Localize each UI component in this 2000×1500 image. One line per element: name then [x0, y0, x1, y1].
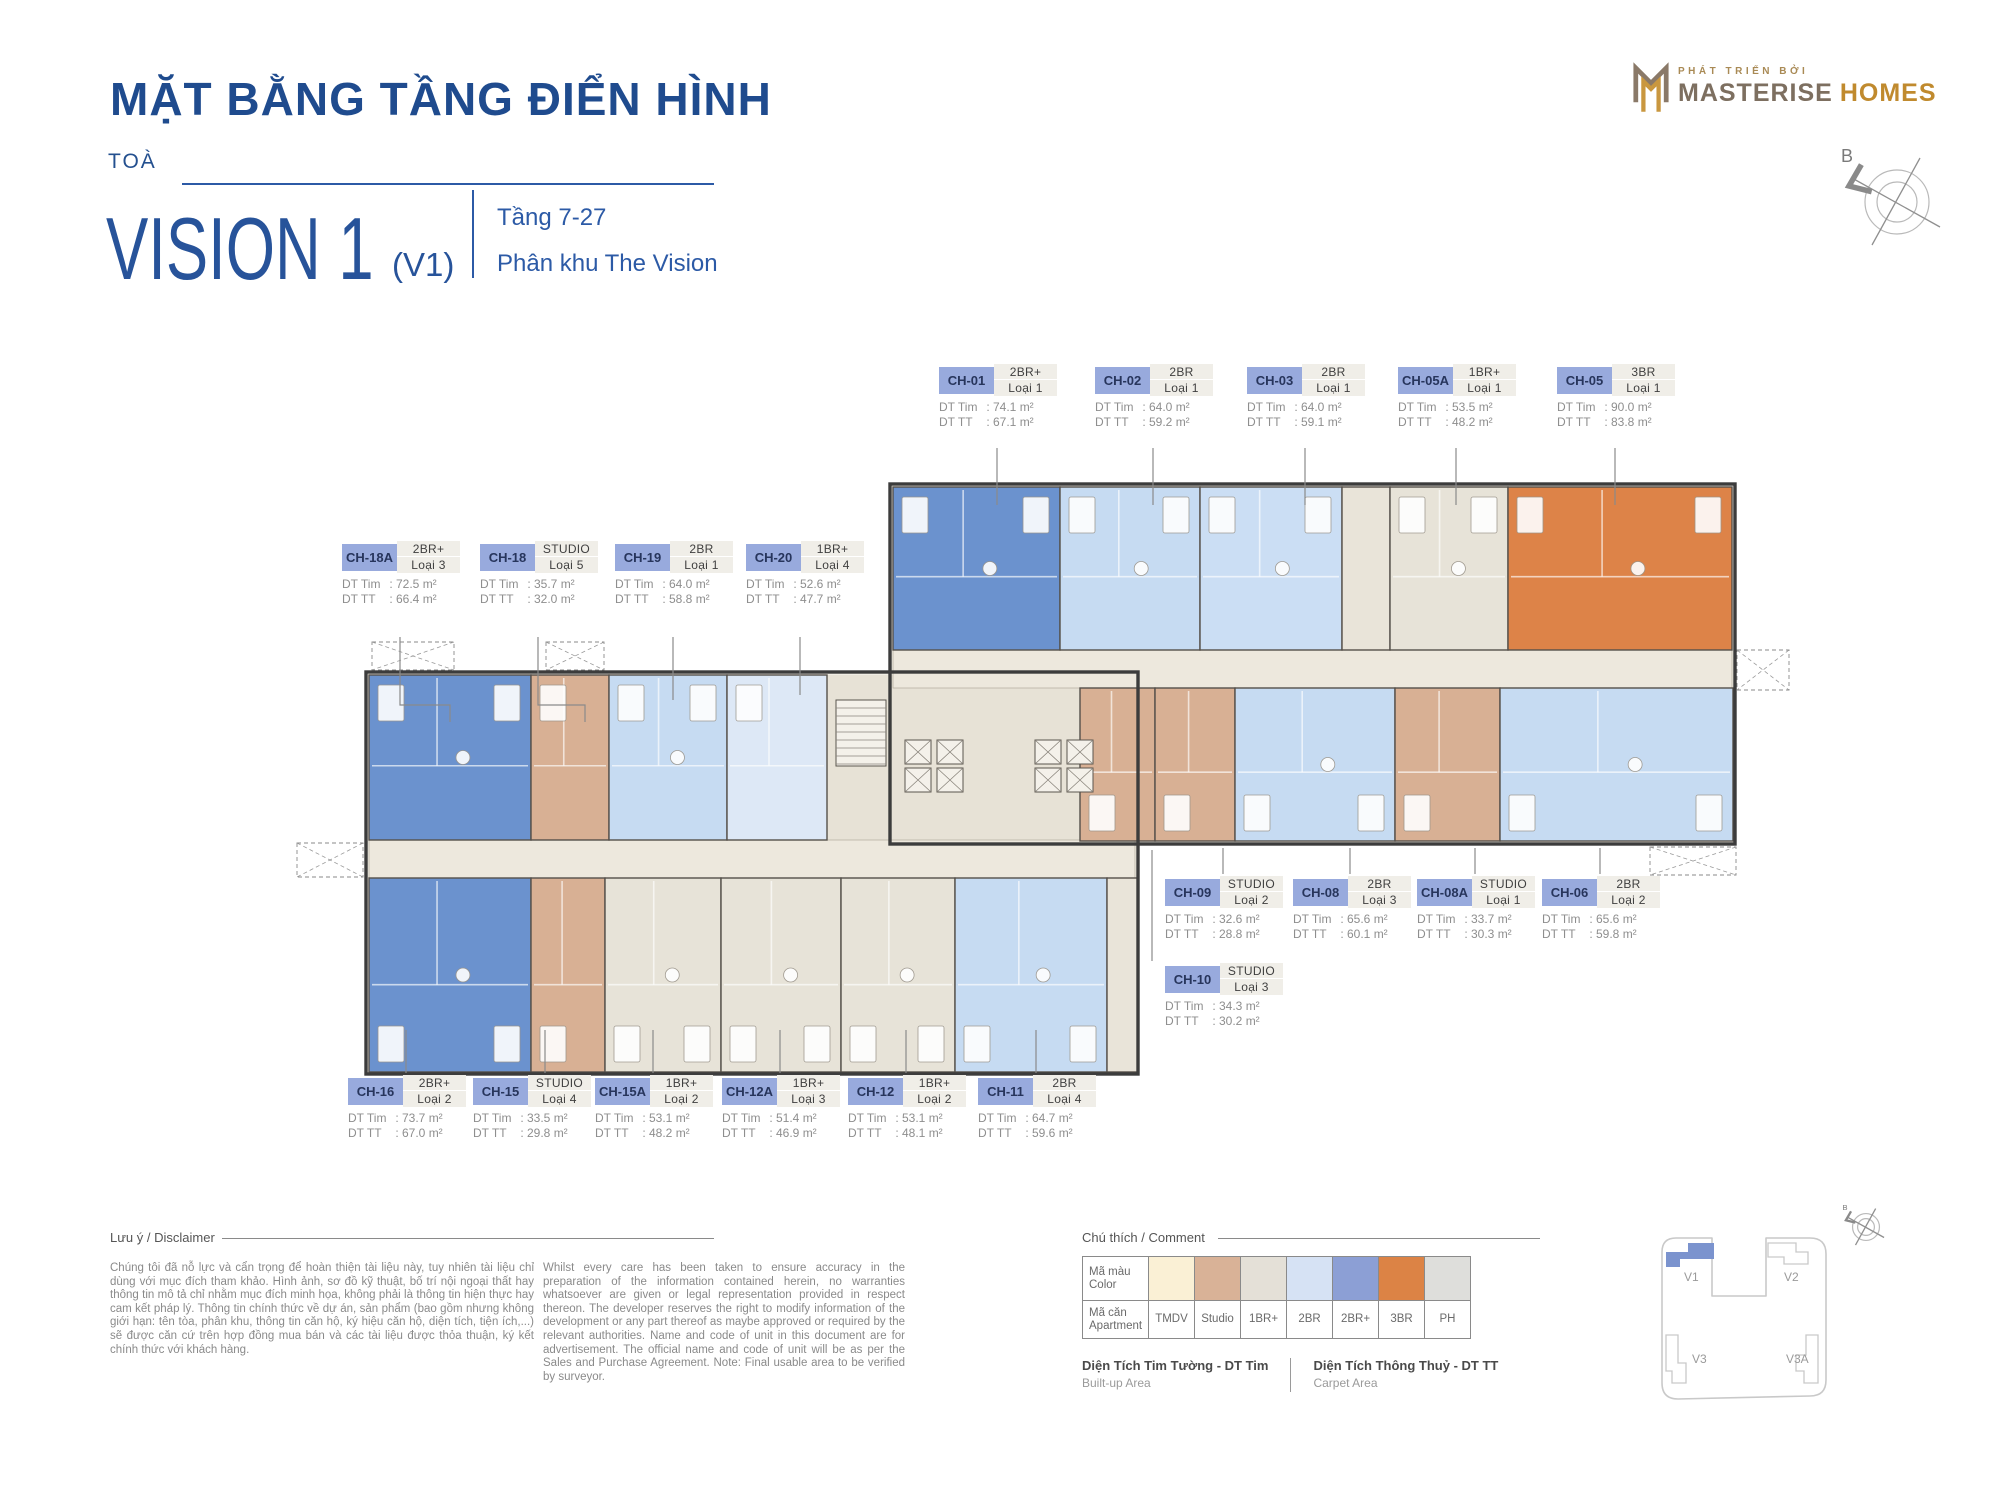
unit-type-box: 1BR+ Loại 1 — [1453, 364, 1516, 396]
legend-type-label: PH — [1425, 1301, 1471, 1339]
carpet-area-row: DT TT:59.8 m² — [1542, 927, 1660, 942]
carpet-area-row: DT TT:59.2 m² — [1095, 415, 1213, 430]
unit-variant: Loại 4 — [528, 1091, 591, 1107]
unit-code-chip: CH-03 — [1247, 367, 1302, 394]
unit-variant: Loại 3 — [777, 1091, 840, 1107]
plan-unit-ch-05a — [1390, 487, 1508, 650]
carpet-area-row: DT TT:48.1 m² — [848, 1126, 966, 1141]
unit-variant: Loại 3 — [397, 557, 460, 573]
section-hatch — [297, 843, 363, 877]
unit-variant: Loại 2 — [403, 1091, 466, 1107]
page-title: MẶT BẰNG TẦNG ĐIỂN HÌNH — [110, 72, 772, 126]
unit-type: 2BR+ — [403, 1075, 466, 1091]
dt-tim-value: 33.5 m² — [527, 1111, 568, 1126]
plan-unit-ch-10 — [1080, 688, 1155, 841]
dt-tt-value: 30.2 m² — [1219, 1014, 1260, 1029]
dt-tim-value: 53.1 m² — [649, 1111, 690, 1126]
dt-tim-value: 33.7 m² — [1471, 912, 1512, 927]
built-up-area-row: DT Tim:64.0 m² — [1247, 400, 1365, 415]
floor-range: Tầng 7-27 — [497, 204, 606, 232]
disclaimer-text-vi: Chúng tôi đã nỗ lực và cẩn trọng để hoàn… — [110, 1262, 534, 1357]
unit-label-ch-12a: CH-12A 1BR+ Loại 3 DT Tim:51.4 m² DT TT:… — [722, 1075, 840, 1141]
dt-tt-value: 47.7 m² — [800, 592, 841, 607]
dt-tim-value: 73.7 m² — [402, 1111, 443, 1126]
dt-tim-label: DT Tim — [1542, 912, 1586, 927]
dt-tt-label: DT TT — [615, 592, 659, 607]
legend-color-swatch-1br+ — [1241, 1257, 1287, 1301]
plan-unit-ch-08a — [1395, 688, 1500, 841]
dt-tt-value: 59.6 m² — [1032, 1126, 1073, 1141]
plan-unit-ch-12a — [721, 878, 841, 1072]
minimap-label-v1: V1 — [1684, 1270, 1699, 1284]
unit-code-chip: CH-15 — [473, 1078, 528, 1105]
unit-type: 3BR — [1612, 364, 1675, 380]
dt-tim-value: 35.7 m² — [534, 577, 575, 592]
developer-name-secondary: HOMES — [1840, 79, 1937, 107]
unit-type: 2BR — [1597, 876, 1660, 892]
unit-type: 1BR+ — [777, 1075, 840, 1091]
built-up-area-row: DT Tim:64.0 m² — [615, 577, 733, 592]
dt-tt-value: 66.4 m² — [396, 592, 437, 607]
unit-type-box: 2BR Loại 1 — [1150, 364, 1213, 396]
unit-type-box: 2BR Loại 3 — [1348, 876, 1411, 908]
unit-type-box: 1BR+ Loại 3 — [777, 1075, 840, 1107]
tower-name: VISION 1 — [106, 198, 374, 300]
dt-tim-value: 53.1 m² — [902, 1111, 943, 1126]
elevator-shaft — [905, 740, 931, 764]
elevator-shaft — [937, 768, 963, 792]
legend-heading: Chú thích / Comment — [1082, 1230, 1205, 1245]
dt-tim-label: DT Tim — [1095, 400, 1139, 415]
dt-tt-label: DT TT — [746, 592, 790, 607]
elevator-shaft — [905, 768, 931, 792]
dt-tim-label: DT Tim — [348, 1111, 392, 1126]
dt-tim-label: DT Tim — [978, 1111, 1022, 1126]
carpet-area-row: DT TT:59.6 m² — [978, 1126, 1096, 1141]
plan-unit-ch-06 — [1500, 688, 1733, 841]
unit-label-ch-16: CH-16 2BR+ Loại 2 DT Tim:73.7 m² DT TT:6… — [348, 1075, 466, 1141]
carpet-area-row: DT TT:59.1 m² — [1247, 415, 1365, 430]
dt-tt-value: 59.1 m² — [1301, 415, 1342, 430]
unit-variant: Loại 1 — [1150, 380, 1213, 396]
built-up-area-row: DT Tim:32.6 m² — [1165, 912, 1283, 927]
unit-type: 2BR — [1302, 364, 1365, 380]
unit-variant: Loại 1 — [1453, 380, 1516, 396]
site-minimap — [1662, 1238, 1826, 1399]
dt-tt-value: 48.2 m² — [1452, 415, 1493, 430]
dt-tim-value: 64.7 m² — [1032, 1111, 1073, 1126]
dt-tt-value: 83.8 m² — [1611, 415, 1652, 430]
dt-tim-label: DT Tim — [615, 577, 659, 592]
unit-variant: Loại 2 — [1597, 892, 1660, 908]
unit-code-chip: CH-11 — [978, 1078, 1033, 1105]
unit-type: STUDIO — [1220, 876, 1283, 892]
unit-variant: Loại 1 — [670, 557, 733, 573]
dt-tim-label: DT Tim — [1165, 912, 1209, 927]
plan-unit-ch-15a — [605, 878, 721, 1072]
plan-unit-ch-03 — [1200, 487, 1342, 650]
unit-type-box: STUDIO Loại 3 — [1220, 963, 1283, 995]
legend-apartment-row-label: Mã cănApartment — [1083, 1301, 1149, 1339]
minimap-label-v3a: V3A — [1786, 1352, 1809, 1366]
dt-tim-value: 52.6 m² — [800, 577, 841, 592]
unit-code-chip: CH-15A — [595, 1078, 650, 1105]
unit-code-chip: CH-01 — [939, 367, 994, 394]
masterise-monogram-icon — [1632, 60, 1670, 119]
dt-tt-label: DT TT — [1557, 415, 1601, 430]
legend-rule — [1218, 1238, 1540, 1239]
section-hatch — [1650, 847, 1736, 875]
legend-type-label: Studio — [1195, 1301, 1241, 1339]
unit-label-ch-15a: CH-15A 1BR+ Loại 2 DT Tim:53.1 m² DT TT:… — [595, 1075, 713, 1141]
plan-hall — [1342, 487, 1390, 650]
unit-type-box: STUDIO Loại 1 — [1472, 876, 1535, 908]
legend-type-label: TMDV — [1149, 1301, 1195, 1339]
legend-type-label: 2BR — [1287, 1301, 1333, 1339]
plan-unit-ch-02 — [1060, 487, 1200, 650]
dt-tt-label: DT TT — [722, 1126, 766, 1141]
unit-type-box: 1BR+ Loại 4 — [801, 541, 864, 573]
dt-tt-label: DT TT — [480, 592, 524, 607]
dt-tt-value: 29.8 m² — [527, 1126, 568, 1141]
built-up-area-row: DT Tim:90.0 m² — [1557, 400, 1675, 415]
elevator-shaft — [1035, 768, 1061, 792]
plan-unit-ch-08 — [1235, 688, 1395, 841]
unit-variant: Loại 1 — [1472, 892, 1535, 908]
dt-tim-value: 74.1 m² — [993, 400, 1034, 415]
definitions-divider — [1290, 1358, 1291, 1392]
elevator-shaft — [1067, 740, 1093, 764]
plan-hall — [1107, 878, 1138, 1072]
unit-label-ch-19: CH-19 2BR Loại 1 DT Tim:64.0 m² DT TT:58… — [615, 541, 733, 607]
built-up-area-row: DT Tim:33.7 m² — [1417, 912, 1535, 927]
unit-label-ch-05a: CH-05A 1BR+ Loại 1 DT Tim:53.5 m² DT TT:… — [1398, 364, 1516, 430]
unit-code-chip: CH-05 — [1557, 367, 1612, 394]
dt-tim-label: DT Tim — [342, 577, 386, 592]
dt-tt-label: DT TT — [978, 1126, 1022, 1141]
carpet-area-row: DT TT:83.8 m² — [1557, 415, 1675, 430]
unit-type: 2BR — [1033, 1075, 1096, 1091]
unit-code-chip: CH-09 — [1165, 879, 1220, 906]
dt-tim-value: 64.0 m² — [1149, 400, 1190, 415]
unit-type: STUDIO — [1220, 963, 1283, 979]
unit-label-ch-01: CH-01 2BR+ Loại 1 DT Tim:74.1 m² DT TT:6… — [939, 364, 1057, 430]
unit-code-chip: CH-05A — [1398, 367, 1453, 394]
dt-tt-value: 30.3 m² — [1471, 927, 1512, 942]
unit-type-box: 1BR+ Loại 2 — [903, 1075, 966, 1107]
unit-code-chip: CH-08A — [1417, 879, 1472, 906]
unit-label-ch-11: CH-11 2BR Loại 4 DT Tim:64.7 m² DT TT:59… — [978, 1075, 1096, 1141]
unit-type: 1BR+ — [1453, 364, 1516, 380]
unit-type: STUDIO — [528, 1075, 591, 1091]
legend-color-swatch-tmdv — [1149, 1257, 1195, 1301]
unit-label-ch-12: CH-12 1BR+ Loại 2 DT Tim:53.1 m² DT TT:4… — [848, 1075, 966, 1141]
dt-tim-label: DT Tim — [473, 1111, 517, 1126]
built-up-area-row: DT Tim:53.1 m² — [595, 1111, 713, 1126]
disclaimer-heading: Lưu ý / Disclaimer — [110, 1230, 215, 1245]
header-rule — [182, 183, 714, 185]
carpet-area-row: DT TT:28.8 m² — [1165, 927, 1283, 942]
developer-tagline: PHÁT TRIỂN BỞI — [1678, 66, 1937, 77]
dt-tt-label: DT TT — [1247, 415, 1291, 430]
dt-tt-label: DT TT — [1165, 1014, 1209, 1029]
unit-label-ch-02: CH-02 2BR Loại 1 DT Tim:64.0 m² DT TT:59… — [1095, 364, 1213, 430]
dt-tt-label: DT TT — [342, 592, 386, 607]
legend-type-label: 1BR+ — [1241, 1301, 1287, 1339]
dt-tim-value: 90.0 m² — [1611, 400, 1652, 415]
legend-table: Mã màuColorMã cănApartmentTMDVStudio1BR+… — [1082, 1256, 1471, 1339]
built-up-area-row: DT Tim:53.5 m² — [1398, 400, 1516, 415]
compass-icon: B — [1842, 1203, 1884, 1245]
dt-tt-label: DT TT — [1542, 927, 1586, 942]
unit-label-ch-03: CH-03 2BR Loại 1 DT Tim:64.0 m² DT TT:59… — [1247, 364, 1365, 430]
dt-tt-label: DT TT — [595, 1126, 639, 1141]
unit-label-ch-09: CH-09 STUDIO Loại 2 DT Tim:32.6 m² DT TT… — [1165, 876, 1283, 942]
unit-variant: Loại 5 — [535, 557, 598, 573]
dt-tt-value: 60.1 m² — [1347, 927, 1388, 942]
carpet-area-row: DT TT:30.3 m² — [1417, 927, 1535, 942]
dt-tt-value: 67.1 m² — [993, 415, 1034, 430]
carpet-area-row: DT TT:29.8 m² — [473, 1126, 591, 1141]
dt-tt-label: DT TT — [1165, 927, 1209, 942]
disclaimer-rule — [222, 1238, 714, 1239]
legend-type-label: 2BR+ — [1333, 1301, 1379, 1339]
carpet-area-row: DT TT:46.9 m² — [722, 1126, 840, 1141]
unit-variant: Loại 4 — [1033, 1091, 1096, 1107]
unit-label-ch-06: CH-06 2BR Loại 2 DT Tim:65.6 m² DT TT:59… — [1542, 876, 1660, 942]
dt-tim-value: 51.4 m² — [776, 1111, 817, 1126]
plan-unit-ch-12 — [841, 878, 955, 1072]
carpet-area-row: DT TT:67.0 m² — [348, 1126, 466, 1141]
dt-tim-value: 53.5 m² — [1452, 400, 1493, 415]
dt-tt-label: DT TT — [848, 1126, 892, 1141]
zone-name: Phân khu The Vision — [497, 250, 718, 278]
unit-code-chip: CH-12A — [722, 1078, 777, 1105]
built-up-area-row: DT Tim:35.7 m² — [480, 577, 598, 592]
built-up-definition: Diện Tích Tim Tường - DT Tim Built-up Ar… — [1082, 1358, 1268, 1390]
section-hatch — [546, 642, 604, 670]
unit-type-box: 2BR+ Loại 2 — [403, 1075, 466, 1107]
unit-code-chip: CH-10 — [1165, 966, 1220, 993]
carpet-area-row: DT TT:60.1 m² — [1293, 927, 1411, 942]
stairwell — [836, 700, 886, 766]
plan-unit-ch-15 — [531, 878, 605, 1072]
dt-tt-value: 67.0 m² — [402, 1126, 443, 1141]
carpet-area-row: DT TT:47.7 m² — [746, 592, 864, 607]
dt-tt-label: DT TT — [348, 1126, 392, 1141]
built-up-area-row: DT Tim:65.6 m² — [1293, 912, 1411, 927]
dt-tim-value: 32.6 m² — [1219, 912, 1260, 927]
unit-type: 2BR — [1150, 364, 1213, 380]
dt-tim-value: 65.6 m² — [1596, 912, 1637, 927]
unit-variant: Loại 3 — [1220, 979, 1283, 995]
unit-type-box: STUDIO Loại 5 — [535, 541, 598, 573]
area-definitions: Diện Tích Tim Tường - DT Tim Built-up Ar… — [1082, 1358, 1498, 1392]
dt-tt-label: DT TT — [1417, 927, 1461, 942]
unit-variant: Loại 4 — [801, 557, 864, 573]
unit-label-ch-18: CH-18 STUDIO Loại 5 DT Tim:35.7 m² DT TT… — [480, 541, 598, 607]
unit-type: 2BR — [670, 541, 733, 557]
compass-icon: B — [1841, 146, 1940, 245]
dt-tim-value: 64.0 m² — [1301, 400, 1342, 415]
unit-code-chip: CH-20 — [746, 544, 801, 571]
plan-unit-ch-16 — [369, 878, 531, 1072]
legend-color-row-label: Mã màuColor — [1083, 1257, 1149, 1301]
carpet-en: Carpet Area — [1313, 1376, 1498, 1390]
dt-tim-label: DT Tim — [595, 1111, 639, 1126]
dt-tim-value: 64.0 m² — [669, 577, 710, 592]
unit-label-ch-20: CH-20 1BR+ Loại 4 DT Tim:52.6 m² DT TT:4… — [746, 541, 864, 607]
label-leader-line — [400, 637, 450, 722]
minimap-label-v3: V3 — [1692, 1352, 1707, 1366]
unit-type: STUDIO — [535, 541, 598, 557]
built-up-area-row: DT Tim:65.6 m² — [1542, 912, 1660, 927]
unit-code-chip: CH-18 — [480, 544, 535, 571]
legend-color-swatch-studio — [1195, 1257, 1241, 1301]
unit-label-ch-18a: CH-18A 2BR+ Loại 3 DT Tim:72.5 m² DT TT:… — [342, 541, 460, 607]
carpet-area-row: DT TT:48.2 m² — [1398, 415, 1516, 430]
unit-type-box: STUDIO Loại 2 — [1220, 876, 1283, 908]
dt-tt-label: DT TT — [1095, 415, 1139, 430]
compass-north-label: B — [1842, 1203, 1847, 1212]
disclaimer-text-en: Whilst every care has been taken to ensu… — [543, 1262, 905, 1384]
built-up-area-row: DT Tim:53.1 m² — [848, 1111, 966, 1126]
unit-code-chip: CH-12 — [848, 1078, 903, 1105]
tower-prefix: TOÀ — [108, 150, 157, 174]
unit-code-chip: CH-08 — [1293, 879, 1348, 906]
unit-type-box: 1BR+ Loại 2 — [650, 1075, 713, 1107]
unit-type: 1BR+ — [650, 1075, 713, 1091]
unit-type: 1BR+ — [903, 1075, 966, 1091]
carpet-area-row: DT TT:66.4 m² — [342, 592, 460, 607]
plan-unit-ch-01 — [893, 487, 1060, 650]
dt-tim-label: DT Tim — [746, 577, 790, 592]
legend-color-swatch-ph — [1425, 1257, 1471, 1301]
plan-unit-ch-18a — [369, 675, 531, 840]
dt-tim-label: DT Tim — [1417, 912, 1461, 927]
unit-code-chip: CH-18A — [342, 544, 397, 571]
built-up-area-row: DT Tim:74.1 m² — [939, 400, 1057, 415]
carpet-definition: Diện Tích Thông Thuỷ - DT TT Carpet Area — [1313, 1358, 1498, 1390]
unit-variant: Loại 2 — [650, 1091, 713, 1107]
unit-label-ch-08a: CH-08A STUDIO Loại 1 DT Tim:33.7 m² DT T… — [1417, 876, 1535, 942]
built-up-vi: Diện Tích Tim Tường - DT Tim — [1082, 1358, 1268, 1373]
carpet-area-row: DT TT:67.1 m² — [939, 415, 1057, 430]
carpet-area-row: DT TT:32.0 m² — [480, 592, 598, 607]
legend-color-swatch-2br — [1287, 1257, 1333, 1301]
unit-type-box: 2BR Loại 2 — [1597, 876, 1660, 908]
carpet-area-row: DT TT:30.2 m² — [1165, 1014, 1283, 1029]
dt-tim-label: DT Tim — [722, 1111, 766, 1126]
elevator-shaft — [937, 740, 963, 764]
section-hatch — [1737, 650, 1789, 690]
developer-name-primary: MASTERISE — [1678, 79, 1833, 107]
dt-tt-value: 59.8 m² — [1596, 927, 1637, 942]
built-up-en: Built-up Area — [1082, 1376, 1268, 1390]
legend-type-label: 3BR — [1379, 1301, 1425, 1339]
plan-unit-ch-05 — [1508, 487, 1732, 650]
unit-label-ch-15: CH-15 STUDIO Loại 4 DT Tim:33.5 m² DT TT… — [473, 1075, 591, 1141]
dt-tt-value: 48.2 m² — [649, 1126, 690, 1141]
built-up-area-row: DT Tim:64.7 m² — [978, 1111, 1096, 1126]
plan-unit-ch-19 — [609, 675, 727, 840]
legend-color-swatch-3br — [1379, 1257, 1425, 1301]
unit-type: 1BR+ — [801, 541, 864, 557]
dt-tt-label: DT TT — [473, 1126, 517, 1141]
plan-unit-ch-11 — [955, 878, 1107, 1072]
compass-north-label: B — [1841, 146, 1853, 166]
elevator-shaft — [1035, 740, 1061, 764]
unit-type-box: 2BR Loại 1 — [670, 541, 733, 573]
built-up-area-row: DT Tim:34.3 m² — [1165, 999, 1283, 1014]
unit-type: STUDIO — [1472, 876, 1535, 892]
unit-type-box: 3BR Loại 1 — [1612, 364, 1675, 396]
label-leader-line — [538, 637, 585, 722]
brochure-page: MẶT BẰNG TẦNG ĐIỂN HÌNH TOÀ VISION 1 (V1… — [0, 0, 2000, 1500]
dt-tim-label: DT Tim — [1557, 400, 1601, 415]
unit-type-box: 2BR+ Loại 3 — [397, 541, 460, 573]
built-up-area-row: DT Tim:72.5 m² — [342, 577, 460, 592]
plan-unit-ch-20 — [727, 675, 827, 840]
unit-variant: Loại 1 — [994, 380, 1057, 396]
built-up-area-row: DT Tim:73.7 m² — [348, 1111, 466, 1126]
unit-label-ch-08: CH-08 2BR Loại 3 DT Tim:65.6 m² DT TT:60… — [1293, 876, 1411, 942]
dt-tim-label: DT Tim — [848, 1111, 892, 1126]
tower-code: (V1) — [392, 246, 454, 284]
dt-tim-value: 65.6 m² — [1347, 912, 1388, 927]
dt-tim-label: DT Tim — [1165, 999, 1209, 1014]
plan-unit-ch-18 — [531, 675, 609, 840]
dt-tt-label: DT TT — [939, 415, 983, 430]
dt-tt-value: 28.8 m² — [1219, 927, 1260, 942]
dt-tt-value: 46.9 m² — [776, 1126, 817, 1141]
elevator-shaft — [1067, 768, 1093, 792]
masterise-homes-logo: PHÁT TRIỂN BỞI MASTERISEHOMES — [1632, 60, 1937, 119]
minimap-label-v2: V2 — [1784, 1270, 1799, 1284]
dt-tim-label: DT Tim — [1398, 400, 1442, 415]
plan-unit-ch-09 — [1155, 688, 1235, 841]
dt-tt-label: DT TT — [1398, 415, 1442, 430]
dt-tt-value: 32.0 m² — [534, 592, 575, 607]
built-up-area-row: DT Tim:33.5 m² — [473, 1111, 591, 1126]
dt-tt-value: 59.2 m² — [1149, 415, 1190, 430]
dt-tt-value: 58.8 m² — [669, 592, 710, 607]
built-up-area-row: DT Tim:64.0 m² — [1095, 400, 1213, 415]
unit-variant: Loại 1 — [1612, 380, 1675, 396]
unit-label-ch-10: CH-10 STUDIO Loại 3 DT Tim:34.3 m² DT TT… — [1165, 963, 1283, 1029]
dt-tim-label: DT Tim — [1293, 912, 1337, 927]
carpet-area-row: DT TT:58.8 m² — [615, 592, 733, 607]
unit-type-box: 2BR Loại 4 — [1033, 1075, 1096, 1107]
unit-variant: Loại 2 — [1220, 892, 1283, 908]
unit-code-chip: CH-19 — [615, 544, 670, 571]
dt-tt-label: DT TT — [1293, 927, 1337, 942]
unit-type: 2BR — [1348, 876, 1411, 892]
unit-type: 2BR+ — [994, 364, 1057, 380]
legend-color-swatch-2br+ — [1333, 1257, 1379, 1301]
unit-code-chip: CH-02 — [1095, 367, 1150, 394]
unit-variant: Loại 3 — [1348, 892, 1411, 908]
dt-tim-label: DT Tim — [480, 577, 524, 592]
dt-tt-value: 48.1 m² — [902, 1126, 943, 1141]
section-hatch — [372, 642, 454, 670]
unit-type-box: STUDIO Loại 4 — [528, 1075, 591, 1107]
header-divider — [472, 190, 474, 278]
unit-variant: Loại 1 — [1302, 380, 1365, 396]
unit-variant: Loại 2 — [903, 1091, 966, 1107]
built-up-area-row: DT Tim:52.6 m² — [746, 577, 864, 592]
dt-tim-value: 72.5 m² — [396, 577, 437, 592]
